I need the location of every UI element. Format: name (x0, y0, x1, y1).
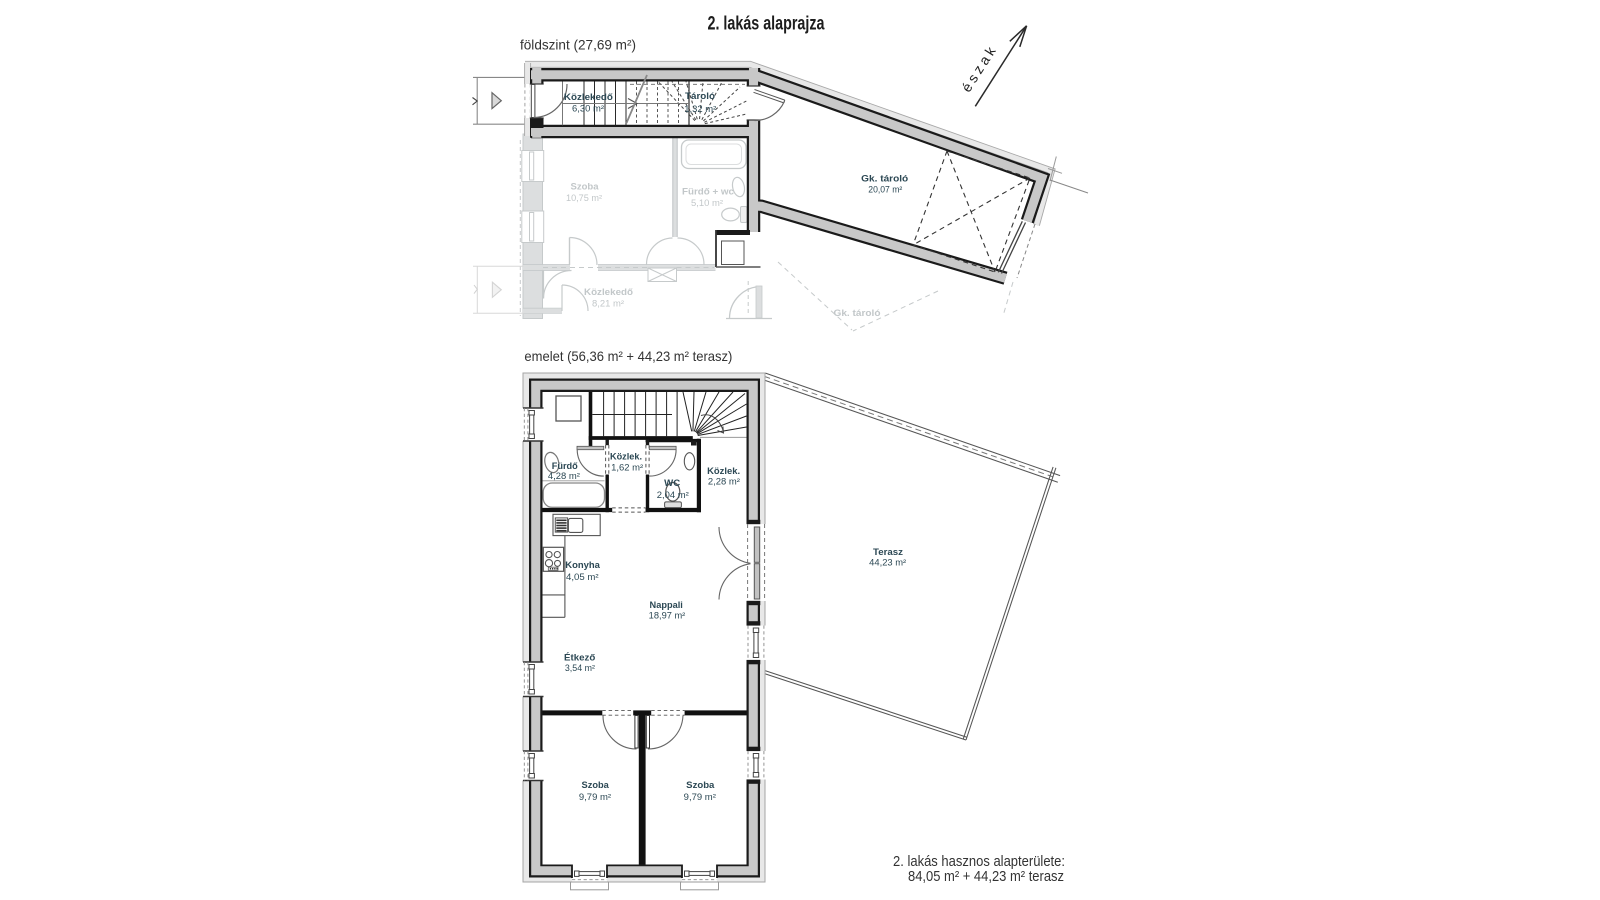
svg-text:Közlekedő: Közlekedő (564, 92, 614, 102)
svg-text:Szoba: Szoba (686, 780, 715, 790)
svg-text:10,75 m²: 10,75 m² (566, 193, 602, 203)
svg-text:emelet (56,36 m² + 44,23 m² te: emelet (56,36 m² + 44,23 m² terasz) (524, 348, 732, 364)
svg-text:Közlek.: Közlek. (707, 466, 740, 476)
svg-text:9,79 m²: 9,79 m² (579, 792, 611, 802)
svg-text:Fürdő + wc: Fürdő + wc (682, 187, 734, 197)
svg-text:4,05 m²: 4,05 m² (566, 572, 599, 582)
svg-text:44,23 m²: 44,23 m² (869, 558, 906, 568)
svg-text:Szoba: Szoba (571, 182, 600, 192)
svg-text:Gk. tároló: Gk. tároló (861, 174, 909, 184)
svg-text:9,79 m²: 9,79 m² (684, 792, 716, 802)
svg-text:Tároló: Tároló (685, 91, 716, 101)
svg-text:2,04 m²: 2,04 m² (657, 490, 689, 500)
svg-text:2,28 m²: 2,28 m² (708, 476, 740, 486)
svg-text:18,97 m²: 18,97 m² (649, 611, 686, 621)
svg-text:Étkező: Étkező (564, 652, 596, 662)
svg-text:Közlekedő: Közlekedő (584, 287, 634, 297)
svg-text:6,30 m²: 6,30 m² (572, 104, 604, 114)
svg-text:Terasz: Terasz (873, 547, 904, 557)
svg-text:5,10 m²: 5,10 m² (691, 198, 723, 208)
svg-text:20,07 m²: 20,07 m² (868, 185, 902, 195)
svg-text:2. lakás alaprajza: 2. lakás alaprajza (708, 13, 825, 35)
svg-text:8,21 m²: 8,21 m² (592, 299, 624, 309)
svg-text:4,28 m²: 4,28 m² (548, 471, 580, 481)
svg-text:Szoba: Szoba (582, 780, 610, 790)
svg-text:Nappali: Nappali (650, 600, 683, 610)
svg-text:Gk. tároló: Gk. tároló (834, 308, 882, 318)
svg-text:földszint (27,69 m²): földszint (27,69 m²) (520, 37, 636, 53)
svg-text:1,32 m²: 1,32 m² (684, 104, 716, 114)
svg-text:2. lakás hasznos alapterülete:: 2. lakás hasznos alapterülete: (893, 854, 1065, 870)
svg-text:Konyha: Konyha (565, 560, 601, 570)
svg-text:3,54 m²: 3,54 m² (565, 663, 595, 673)
svg-text:84,05 m² + 44,23 m² terasz: 84,05 m² + 44,23 m² terasz (908, 869, 1064, 885)
svg-text:WC: WC (664, 478, 681, 488)
svg-text:Közlek.: Közlek. (610, 451, 642, 461)
svg-text:1,62 m²: 1,62 m² (611, 463, 643, 473)
svg-text:Fürdő: Fürdő (552, 461, 579, 471)
